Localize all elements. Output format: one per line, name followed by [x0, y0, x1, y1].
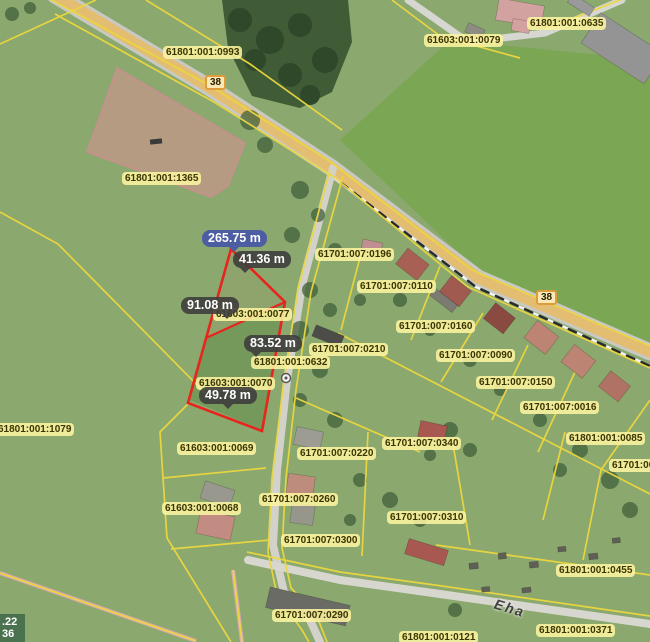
measurement-label: 41.36 m — [233, 251, 291, 268]
parcel-label[interactable]: 61701:007:0150 — [476, 376, 555, 389]
parcel-label[interactable]: 61801:001:0455 — [556, 564, 635, 577]
parcel-label[interactable]: 61701:007:0090 — [436, 349, 515, 362]
coordinate-readout: .22 36 — [0, 614, 25, 642]
measurement-label: 91.08 m — [181, 297, 239, 314]
parcel-label[interactable]: 61701:007:0220 — [297, 447, 376, 460]
parcel-label[interactable]: 61801:001:0993 — [163, 46, 242, 59]
parcel-label[interactable]: 61801:001:0371 — [536, 624, 615, 637]
measurement-label: 49.78 m — [199, 387, 257, 404]
parcel-label[interactable]: 61701:007:0210 — [309, 343, 388, 356]
parcel-label[interactable]: 61603:001:0069 — [177, 442, 256, 455]
parcel-label[interactable]: 61701:007:0260 — [259, 493, 338, 506]
parcel-label[interactable]: 61701:007:0016 — [520, 401, 599, 414]
coordinate-line-1: .22 — [2, 616, 17, 628]
parcel-label[interactable]: 61801:001:0632 — [251, 356, 330, 369]
survey-marker-icon — [282, 374, 291, 383]
parcel-label[interactable]: 61801:001:0121 — [399, 631, 478, 642]
parcel-label[interactable]: 61801:001:1365 — [122, 172, 201, 185]
parcel-label[interactable]: 61701:007:0110 — [357, 280, 436, 293]
measurement-label: 83.52 m — [244, 335, 302, 352]
parcel-label[interactable]: 61701:007:0196 — [315, 248, 394, 261]
parcel-label[interactable]: 61701:007:0290 — [272, 609, 351, 622]
road-number-sign: 38 — [536, 290, 557, 305]
coordinate-line-2: 36 — [2, 628, 17, 640]
map-canvas[interactable]: 61801:001:099361603:001:007961801:001:06… — [0, 0, 650, 642]
parcel-label[interactable]: 61801:001:0635 — [527, 17, 606, 30]
parcel-label[interactable]: 61801:001:1079 — [0, 423, 74, 436]
parcel-label[interactable]: 61701:00 — [609, 459, 650, 472]
parcel-label[interactable]: 61701:007:0160 — [396, 320, 475, 333]
parcel-label[interactable]: 61603:001:0079 — [424, 34, 503, 47]
parcel-label[interactable]: 61701:007:0300 — [281, 534, 360, 547]
selected-measurement-label: 265.75 m — [202, 230, 267, 247]
parcel-label[interactable]: 61701:007:0340 — [382, 437, 461, 450]
road-number-sign: 38 — [205, 75, 226, 90]
parcel-label[interactable]: 61801:001:0085 — [566, 432, 645, 445]
parcel-label[interactable]: 61701:007:0310 — [387, 511, 466, 524]
parcel-label[interactable]: 61603:001:0068 — [162, 502, 241, 515]
